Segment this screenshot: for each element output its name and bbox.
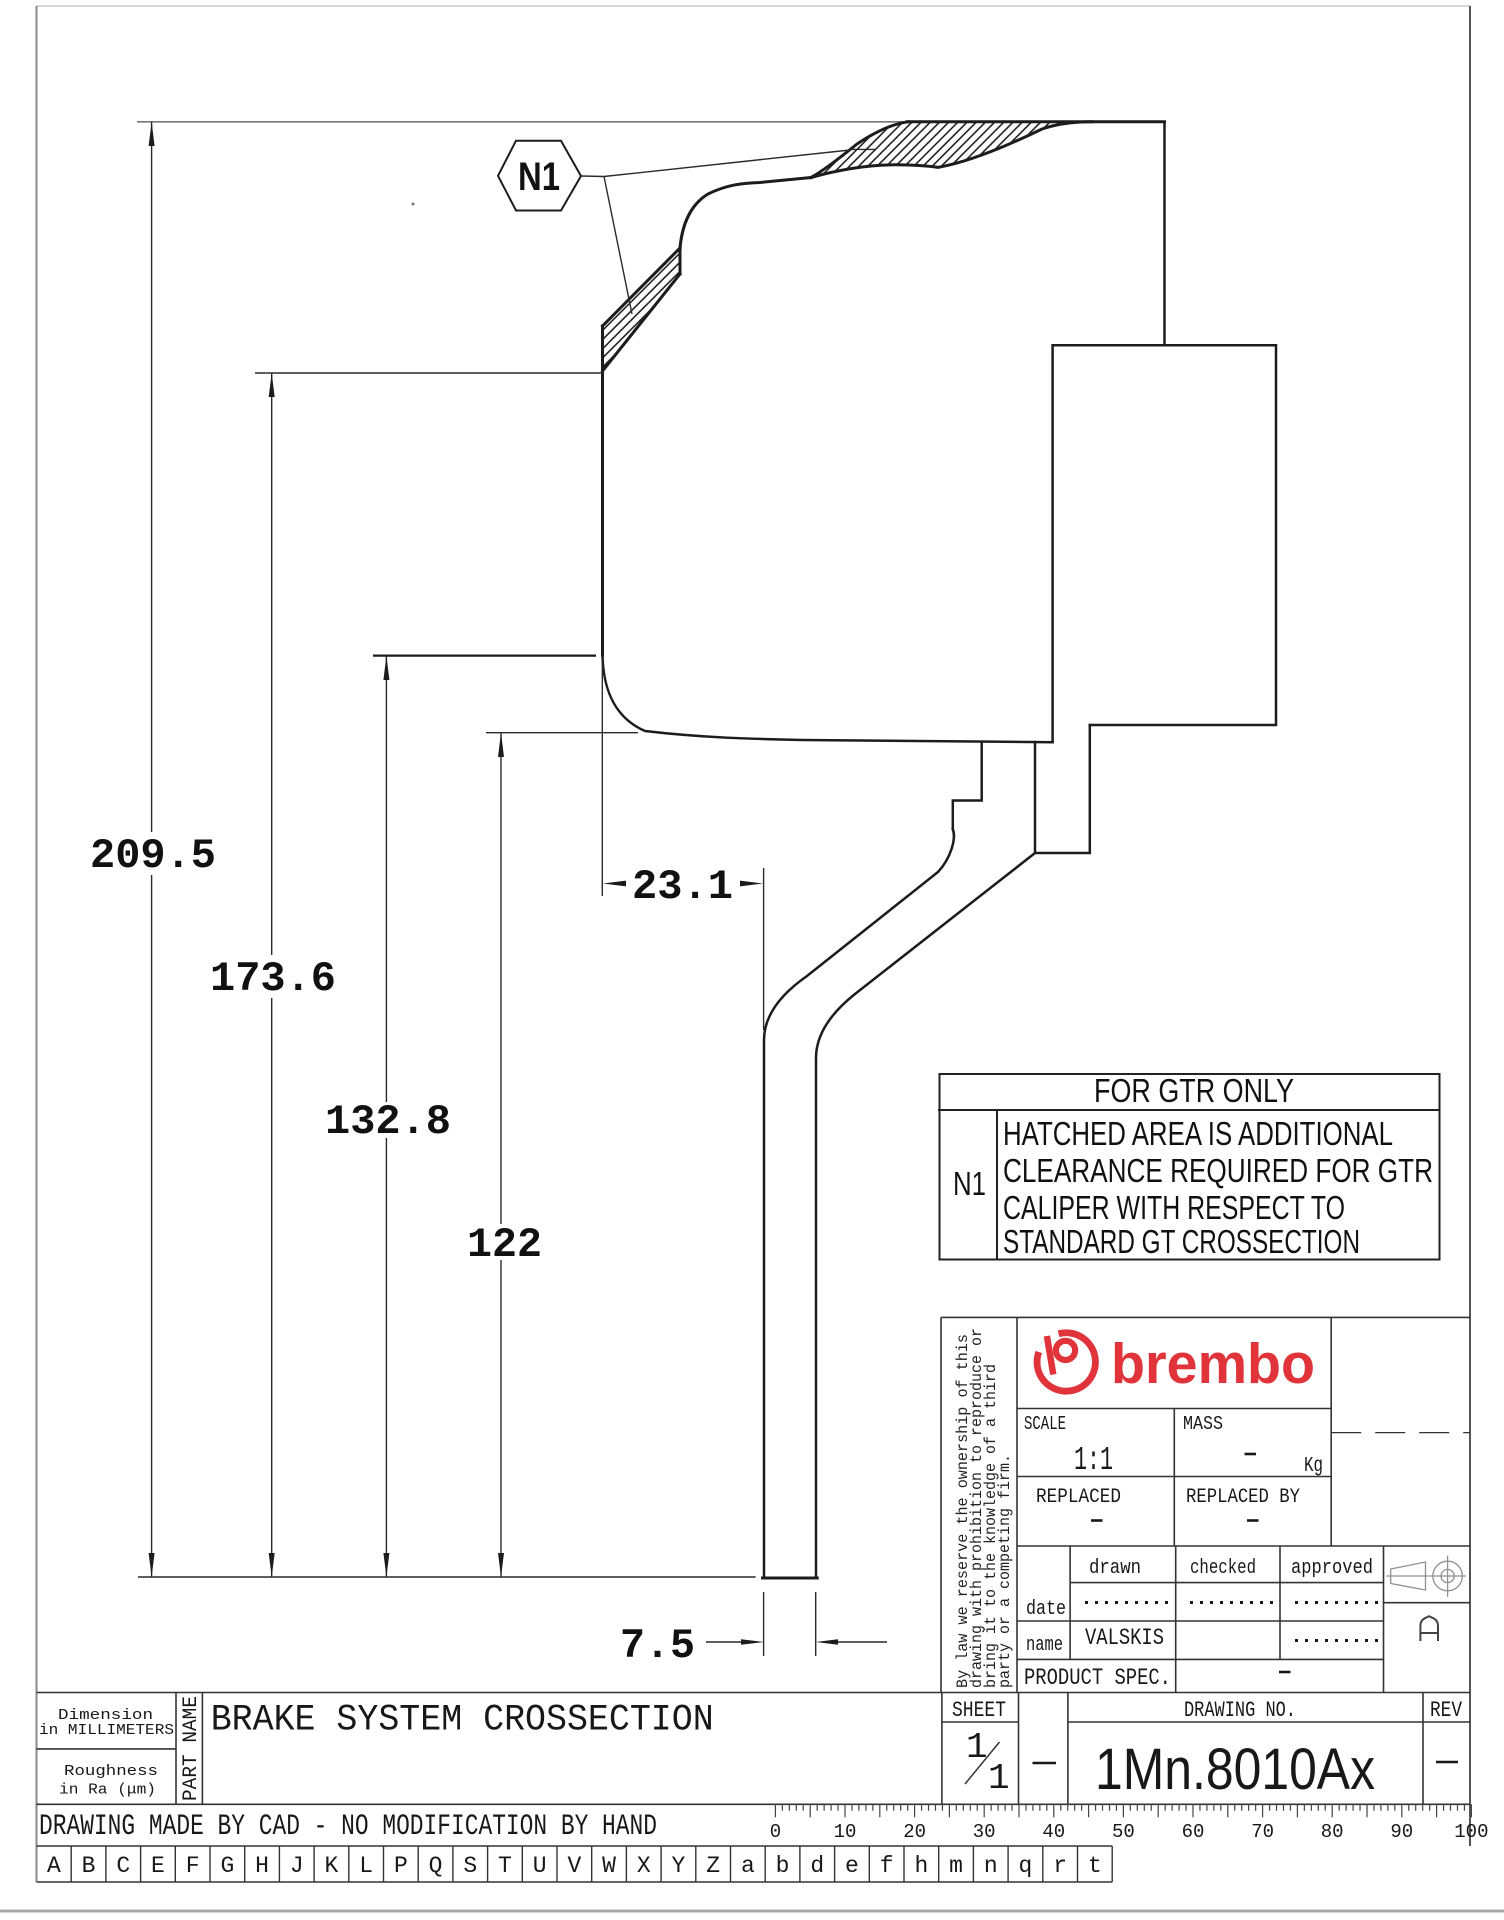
svg-text:MASS: MASS: [1183, 1413, 1223, 1435]
svg-text:Y: Y: [672, 1853, 686, 1879]
svg-text:1Mn.8010Ax: 1Mn.8010Ax: [1095, 1737, 1375, 1802]
svg-text:REPLACED BY: REPLACED BY: [1186, 1486, 1300, 1509]
svg-text:Kg: Kg: [1304, 1455, 1323, 1478]
svg-text:m: m: [949, 1853, 963, 1879]
svg-text:Q: Q: [429, 1853, 443, 1879]
svg-text:U: U: [533, 1853, 547, 1879]
svg-text:PRODUCT SPEC.: PRODUCT SPEC.: [1024, 1665, 1171, 1691]
svg-text:K: K: [325, 1853, 339, 1879]
svg-text:70: 70: [1251, 1821, 1274, 1843]
svg-text:100: 100: [1454, 1821, 1488, 1843]
svg-text:CALIPER WITH RESPECT TO: CALIPER WITH RESPECT TO: [1003, 1189, 1345, 1226]
svg-text:a: a: [741, 1853, 755, 1879]
svg-text:7.5: 7.5: [620, 1622, 695, 1670]
svg-text:HATCHED AREA IS ADDITIONAL: HATCHED AREA IS ADDITIONAL: [1003, 1115, 1393, 1152]
svg-text:approved: approved: [1291, 1557, 1373, 1580]
svg-text:f: f: [880, 1853, 894, 1879]
svg-text:CLEARANCE REQUIRED FOR GTR: CLEARANCE REQUIRED FOR GTR: [1003, 1152, 1433, 1189]
svg-text:brembo: brembo: [1111, 1332, 1315, 1396]
svg-text:B: B: [82, 1853, 96, 1879]
svg-text:1:1: 1:1: [1074, 1442, 1113, 1479]
svg-text:VALSKIS: VALSKIS: [1085, 1625, 1164, 1651]
svg-text:10: 10: [834, 1821, 857, 1843]
svg-text:60: 60: [1182, 1821, 1205, 1843]
svg-text:122: 122: [467, 1221, 542, 1269]
svg-text:30: 30: [973, 1821, 996, 1843]
svg-text:F: F: [186, 1853, 200, 1879]
svg-text:d: d: [810, 1853, 824, 1879]
svg-text:S: S: [463, 1853, 477, 1879]
svg-text:N1: N1: [518, 155, 560, 199]
svg-text:name: name: [1026, 1634, 1063, 1657]
svg-text:Z: Z: [706, 1853, 720, 1879]
svg-text:50: 50: [1112, 1821, 1135, 1843]
svg-text:N1: N1: [953, 1165, 986, 1202]
svg-text:n: n: [984, 1853, 998, 1879]
svg-text:SCALE: SCALE: [1024, 1413, 1066, 1435]
svg-text:P: P: [394, 1853, 408, 1879]
svg-text:H: H: [255, 1853, 269, 1879]
svg-text:173.6: 173.6: [210, 955, 336, 1003]
svg-text:1: 1: [988, 1758, 1010, 1799]
svg-text:1: 1: [966, 1727, 988, 1768]
svg-text:REPLACED: REPLACED: [1036, 1486, 1121, 1509]
svg-text:SHEET: SHEET: [952, 1698, 1006, 1723]
svg-text:PART NAME: PART NAME: [180, 1696, 203, 1801]
svg-text:209.5: 209.5: [90, 832, 216, 880]
svg-text:90: 90: [1390, 1821, 1413, 1843]
svg-text:40: 40: [1042, 1821, 1065, 1843]
svg-text:checked: checked: [1190, 1557, 1256, 1580]
svg-text:in MILLIMETERS: in MILLIMETERS: [39, 1722, 174, 1739]
svg-text:BRAKE SYSTEM CROSSECTION: BRAKE SYSTEM CROSSECTION: [211, 1700, 714, 1742]
svg-text:e: e: [845, 1853, 859, 1879]
svg-text:80: 80: [1321, 1821, 1344, 1843]
svg-text:drawn: drawn: [1089, 1557, 1141, 1580]
svg-text:E: E: [151, 1853, 165, 1879]
svg-text:r: r: [1053, 1853, 1067, 1879]
svg-text:in Ra (μm): in Ra (μm): [59, 1782, 156, 1799]
svg-text:q: q: [1019, 1853, 1033, 1879]
svg-text:23.1: 23.1: [632, 863, 733, 911]
svg-text:Roughness: Roughness: [64, 1763, 158, 1780]
svg-text:DRAWING MADE BY CAD - NO MODIF: DRAWING MADE BY CAD - NO MODIFICATION BY…: [39, 1810, 657, 1844]
svg-text:A: A: [47, 1853, 61, 1879]
svg-text:V: V: [567, 1853, 581, 1879]
svg-text:T: T: [498, 1853, 512, 1879]
svg-text:party or a competing firm.: party or a competing firm.: [996, 1454, 1014, 1688]
svg-text:h: h: [914, 1853, 928, 1879]
svg-text:date: date: [1026, 1598, 1066, 1621]
svg-text:REV: REV: [1430, 1698, 1463, 1723]
svg-text:FOR GTR ONLY: FOR GTR ONLY: [1094, 1072, 1294, 1109]
svg-text:X: X: [637, 1853, 651, 1879]
svg-text:b: b: [776, 1853, 790, 1879]
svg-text:t: t: [1088, 1853, 1102, 1879]
svg-text:L: L: [359, 1853, 373, 1879]
svg-text:132.8: 132.8: [325, 1098, 451, 1146]
svg-text:G: G: [220, 1853, 234, 1879]
svg-text:0: 0: [770, 1821, 781, 1843]
svg-text:J: J: [290, 1853, 304, 1879]
svg-text:20: 20: [903, 1821, 926, 1843]
svg-text:W: W: [602, 1853, 616, 1879]
svg-text:DRAWING NO.: DRAWING NO.: [1184, 1698, 1296, 1723]
svg-text:STANDARD GT CROSSECTION: STANDARD GT CROSSECTION: [1003, 1223, 1360, 1260]
svg-text:C: C: [116, 1853, 130, 1879]
